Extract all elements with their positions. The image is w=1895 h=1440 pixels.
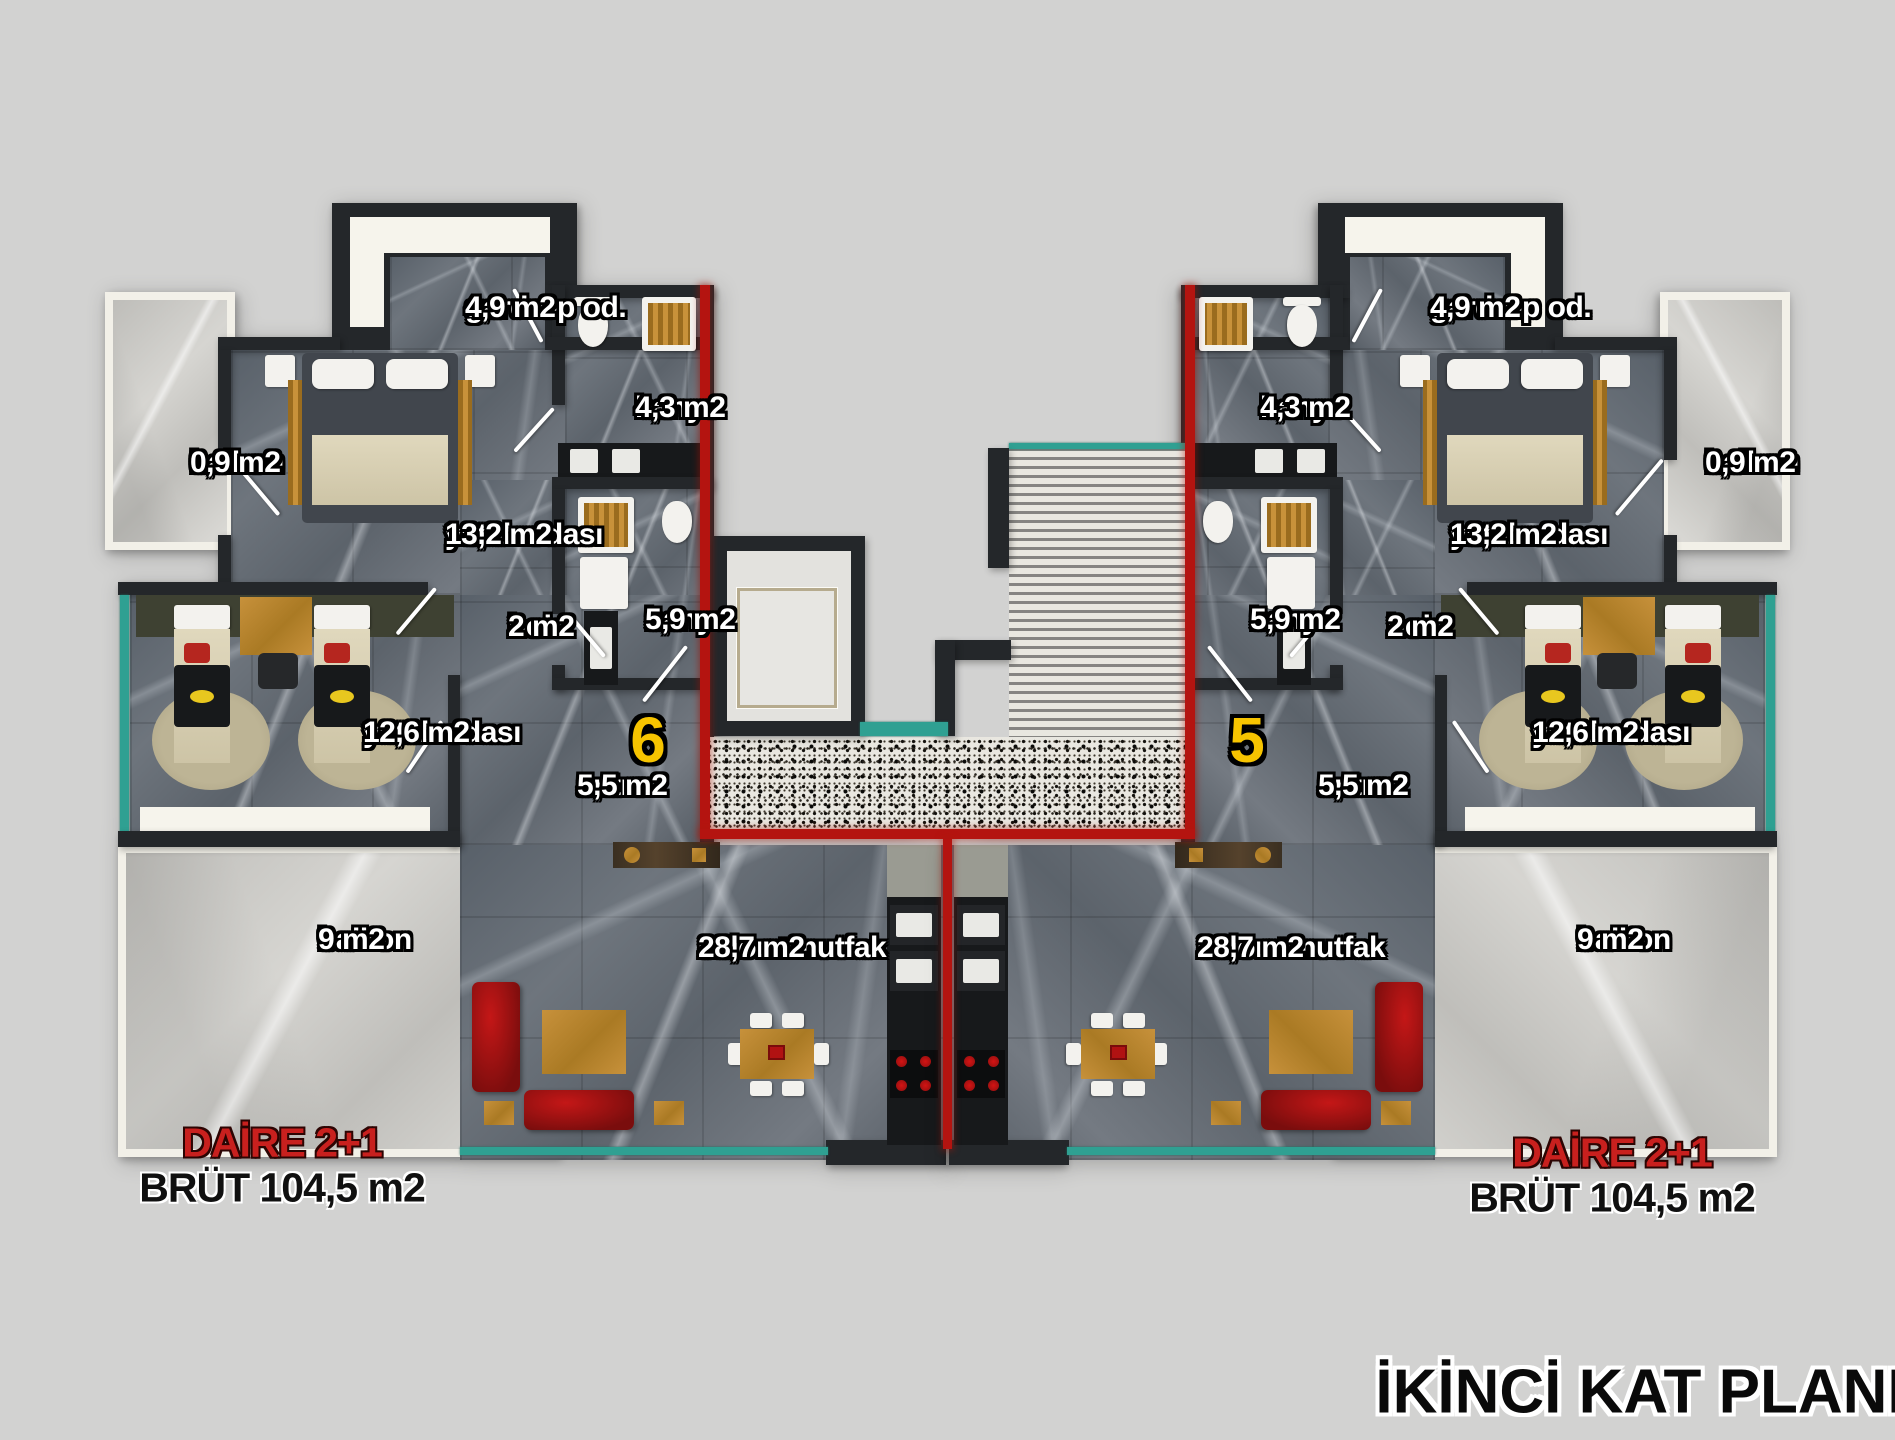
kitchen-sink xyxy=(963,959,999,983)
unit-number-6: 6 xyxy=(630,703,666,777)
batman-emblem xyxy=(1541,690,1565,703)
wall xyxy=(1664,350,1677,460)
side-table xyxy=(1211,1101,1241,1125)
wardrobe-window xyxy=(350,217,550,253)
coffee-table xyxy=(542,1010,626,1074)
batman-emblem xyxy=(330,690,354,703)
kitchen-sink xyxy=(896,913,932,937)
console-decor xyxy=(692,848,706,862)
toilet xyxy=(1203,501,1233,543)
elevator-car xyxy=(737,588,837,708)
stove-burner xyxy=(920,1056,931,1067)
shower-grate xyxy=(1205,303,1247,345)
stove-burner xyxy=(964,1056,975,1067)
dining-chair xyxy=(782,1013,804,1028)
side-table xyxy=(1381,1101,1411,1125)
table-decor xyxy=(1110,1045,1127,1060)
wall xyxy=(1182,477,1343,489)
desk xyxy=(1583,597,1655,655)
single-bed-pillow xyxy=(314,605,370,629)
kitchen-counter-top xyxy=(954,845,1008,897)
desk-chair xyxy=(1597,653,1637,689)
bedroom2-window xyxy=(1465,807,1755,833)
red-pillow xyxy=(184,643,210,663)
dining-chair xyxy=(750,1081,772,1096)
living-room-window xyxy=(460,1147,828,1155)
dining-chair xyxy=(1066,1043,1081,1065)
bedroom2-window xyxy=(140,807,430,833)
stair-wall xyxy=(988,448,1009,568)
wall xyxy=(118,831,460,847)
unit-boundary-left xyxy=(700,285,710,838)
wall xyxy=(1555,337,1677,350)
unit-gross-area-left: BRÜT 104,5 m2 xyxy=(139,1165,425,1212)
floor-plan-canvas: gardrop od.4,9 m2 banyo4,3 m2 balkon0,9 … xyxy=(0,0,1895,1440)
wall xyxy=(118,582,428,595)
core-landing-floor xyxy=(710,737,1185,829)
console-decor xyxy=(1189,848,1203,862)
bathroom-sink xyxy=(570,449,598,473)
unit-boundary-center xyxy=(943,839,952,1149)
single-bed-pillow xyxy=(174,605,230,629)
wall xyxy=(552,489,565,614)
wall xyxy=(552,678,713,690)
unit-gross-area-right: BRÜT 104,5 m2 xyxy=(1469,1175,1755,1222)
pillow xyxy=(1521,359,1583,389)
dining-chair xyxy=(1123,1081,1145,1096)
stove-burner xyxy=(896,1080,907,1091)
stove-burner xyxy=(896,1056,907,1067)
sofa xyxy=(524,1090,634,1130)
dining-chair xyxy=(1123,1013,1145,1028)
side-table xyxy=(484,1101,514,1125)
bathroom-counter xyxy=(580,557,628,609)
bathroom-sink xyxy=(612,449,640,473)
wall xyxy=(552,477,713,489)
small-balcony-floor xyxy=(105,292,235,550)
console-decor xyxy=(624,847,640,863)
bed-rail xyxy=(458,380,472,505)
red-pillow xyxy=(1545,643,1571,663)
bed-rail xyxy=(288,380,302,505)
pillow xyxy=(1447,359,1509,389)
bathroom-sink xyxy=(1255,449,1283,473)
wall xyxy=(218,350,231,460)
stove-burner xyxy=(964,1080,975,1091)
stove-burner xyxy=(988,1080,999,1091)
batman-emblem xyxy=(190,690,214,703)
wall xyxy=(218,337,340,350)
bed-rail xyxy=(1593,380,1607,505)
bed-rail xyxy=(1423,380,1437,505)
wall xyxy=(448,675,460,845)
unit-type-label-left: DAİRE 2+1 xyxy=(182,1120,382,1167)
unit-number-5: 5 xyxy=(1229,703,1265,777)
wall xyxy=(1467,582,1777,595)
bathroom-counter xyxy=(1267,557,1315,609)
sofa xyxy=(472,982,520,1092)
bathroom-sink xyxy=(1297,449,1325,473)
single-bed-pillow xyxy=(1525,605,1581,629)
desk xyxy=(240,597,312,655)
kitchen-counter-top xyxy=(887,845,941,897)
bathroom-sink xyxy=(590,627,612,669)
wardrobe-window xyxy=(1345,217,1545,253)
pillow xyxy=(386,359,448,389)
single-bed-pillow xyxy=(1665,605,1721,629)
core-glass xyxy=(860,722,948,736)
shower-grate xyxy=(648,303,690,345)
bed-blanket xyxy=(312,435,448,505)
bedroom2-glass-wall xyxy=(1766,595,1775,845)
wall xyxy=(1435,831,1777,847)
bedroom2-glass-wall xyxy=(120,595,129,845)
dining-chair xyxy=(814,1043,829,1065)
stove-burner xyxy=(920,1080,931,1091)
red-pillow xyxy=(324,643,350,663)
stair-glass-rail xyxy=(1009,443,1185,449)
wall xyxy=(1330,489,1343,614)
wall xyxy=(1182,678,1343,690)
dining-chair xyxy=(1091,1081,1113,1096)
sofa xyxy=(1375,982,1423,1092)
batman-emblem xyxy=(1681,690,1705,703)
toilet xyxy=(662,501,692,543)
wall xyxy=(1435,675,1447,845)
kitchen-sink xyxy=(896,959,932,983)
bed-blanket xyxy=(1447,435,1583,505)
unit-boundary-right xyxy=(1185,285,1195,838)
side-table xyxy=(654,1101,684,1125)
kitchen-sink xyxy=(963,913,999,937)
small-balcony-floor xyxy=(1660,292,1790,550)
table-decor xyxy=(768,1045,785,1060)
console-decor xyxy=(1255,847,1271,863)
shower-grate xyxy=(1267,503,1311,547)
unit-type-label-right: DAİRE 2+1 xyxy=(1512,1130,1712,1177)
stove-burner xyxy=(988,1056,999,1067)
coffee-table xyxy=(1269,1010,1353,1074)
desk-chair xyxy=(258,653,298,689)
toilet xyxy=(1287,305,1317,347)
living-room-window xyxy=(1067,1147,1435,1155)
unit-boundary-bottom xyxy=(700,829,1195,839)
sofa xyxy=(1261,1090,1371,1130)
floor-plan-title: İKİNCİ KAT PLANI xyxy=(1375,1357,1895,1428)
dining-chair xyxy=(1091,1013,1113,1028)
pillow xyxy=(312,359,374,389)
dining-chair xyxy=(782,1081,804,1096)
dining-chair xyxy=(750,1013,772,1028)
red-pillow xyxy=(1685,643,1711,663)
